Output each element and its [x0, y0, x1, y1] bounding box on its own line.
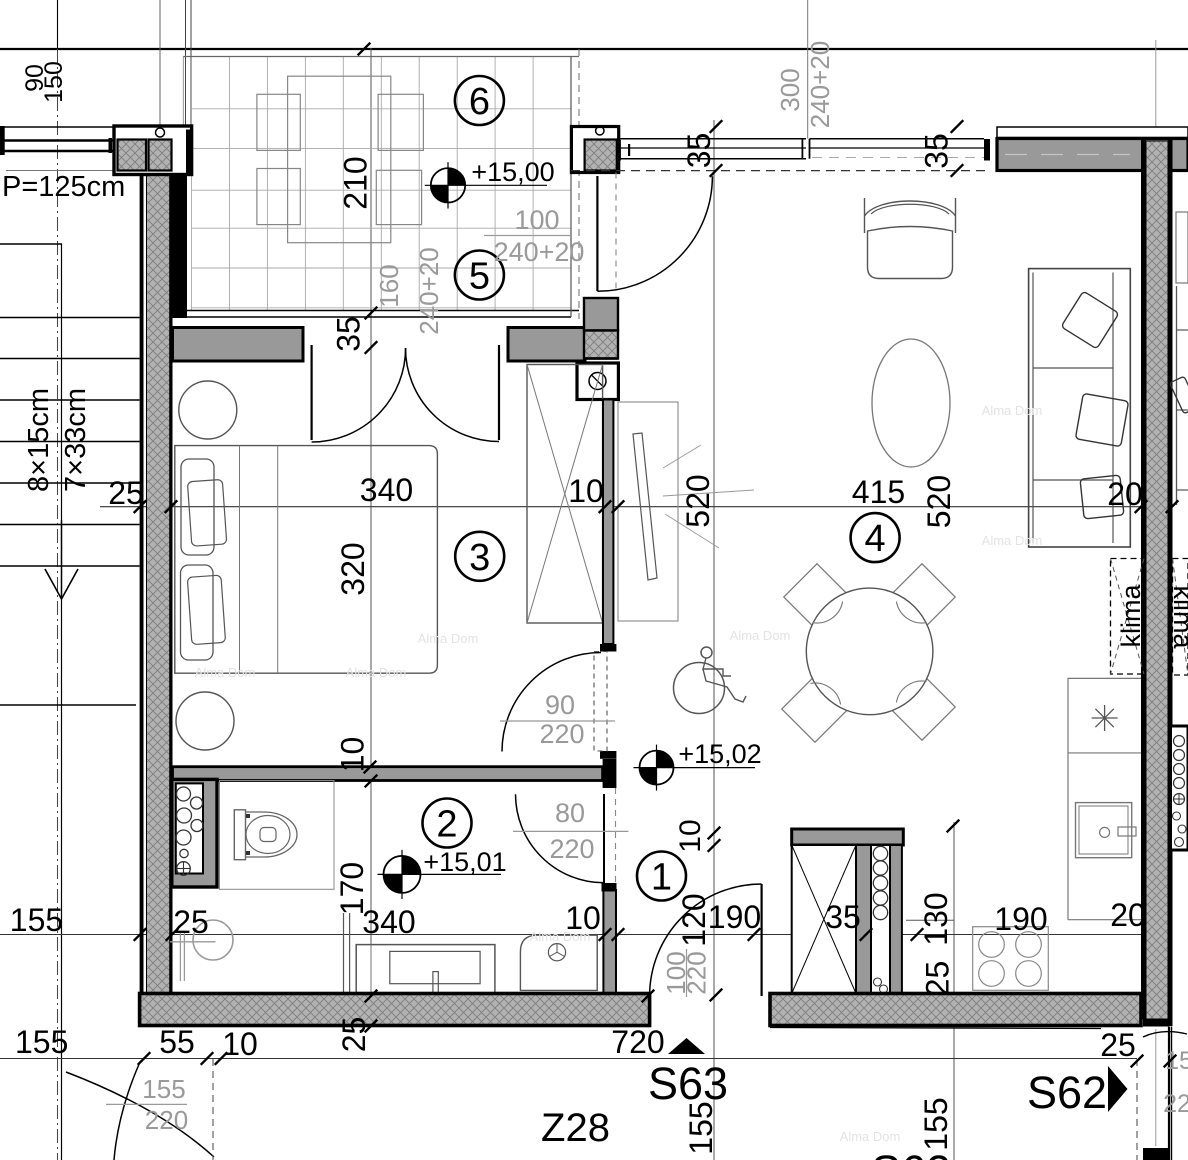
svg-text:35: 35 [681, 133, 717, 169]
svg-text:+15,00: +15,00 [471, 157, 554, 187]
svg-text:415: 415 [852, 474, 905, 510]
svg-text:100: 100 [514, 205, 559, 235]
svg-text:4: 4 [865, 518, 886, 560]
svg-text:190: 190 [708, 899, 761, 935]
svg-text:P=125cm: P=125cm [2, 171, 125, 203]
svg-text:35: 35 [825, 899, 861, 935]
svg-text:155: 155 [683, 1101, 719, 1154]
svg-text:Alma Dom: Alma Dom [982, 533, 1043, 548]
svg-text:240+20: 240+20 [494, 237, 585, 267]
svg-text:1: 1 [651, 857, 672, 899]
svg-text:220: 220 [145, 1105, 188, 1135]
svg-text:+15,02: +15,02 [678, 739, 761, 769]
svg-text:klima: klima [1116, 584, 1146, 648]
svg-text:300: 300 [775, 68, 805, 111]
svg-text:155: 155 [10, 902, 63, 938]
svg-text:Z28: Z28 [541, 1106, 610, 1150]
svg-text:10: 10 [222, 1026, 258, 1062]
svg-text:90: 90 [545, 690, 575, 720]
svg-text:Alma Dom: Alma Dom [346, 665, 407, 680]
svg-text:55: 55 [159, 1024, 195, 1060]
svg-text:320: 320 [335, 542, 371, 595]
svg-text:Alma Dom: Alma Dom [840, 1129, 901, 1144]
svg-text:10: 10 [674, 819, 707, 852]
svg-text:10: 10 [335, 737, 371, 773]
svg-text:7×33cm: 7×33cm [60, 388, 92, 492]
svg-text:S62: S62 [871, 1146, 951, 1160]
svg-text:S62: S62 [1027, 1067, 1107, 1118]
svg-text:220: 220 [1163, 1090, 1188, 1118]
svg-text:35: 35 [331, 316, 367, 352]
svg-text:155: 155 [142, 1074, 185, 1104]
svg-text:80: 80 [555, 798, 585, 828]
svg-text:220: 220 [549, 834, 594, 864]
svg-text:190: 190 [994, 901, 1047, 937]
svg-text:25: 25 [173, 904, 209, 940]
svg-text:35: 35 [919, 133, 955, 169]
svg-text:6: 6 [469, 81, 490, 123]
svg-text:25: 25 [108, 475, 144, 511]
svg-text:2: 2 [436, 804, 457, 846]
svg-text:3: 3 [469, 537, 490, 579]
svg-text:25: 25 [336, 1017, 372, 1053]
svg-text:5: 5 [469, 256, 490, 298]
svg-text:720: 720 [611, 1024, 664, 1060]
svg-text:20: 20 [1110, 897, 1146, 933]
svg-text:220: 220 [539, 719, 584, 749]
svg-text:Alma Dom: Alma Dom [530, 929, 591, 944]
svg-text:Alma Dom: Alma Dom [418, 631, 479, 646]
svg-text:Alma Dom: Alma Dom [982, 403, 1043, 418]
svg-text:10: 10 [568, 473, 604, 509]
svg-text:240+20: 240+20 [414, 247, 444, 334]
svg-text:Alma Dom: Alma Dom [730, 628, 791, 643]
svg-text:155: 155 [918, 1097, 954, 1150]
svg-text:340: 340 [362, 904, 415, 940]
svg-text:340: 340 [360, 472, 413, 508]
svg-text:25: 25 [1100, 1027, 1136, 1063]
svg-text:120: 120 [676, 893, 712, 946]
svg-text:20: 20 [1107, 476, 1143, 512]
svg-text:S63: S63 [648, 1058, 728, 1109]
svg-text:210: 210 [338, 156, 374, 209]
svg-text:170: 170 [334, 862, 370, 915]
svg-text:240+20: 240+20 [805, 41, 835, 128]
svg-text:Alma Dom: Alma Dom [195, 665, 256, 680]
svg-text:klima: klima [1168, 585, 1188, 649]
svg-text:130: 130 [918, 892, 954, 945]
svg-text:160: 160 [374, 264, 404, 307]
svg-text:25: 25 [920, 961, 956, 997]
svg-text:520: 520 [921, 475, 957, 528]
svg-text:520: 520 [680, 474, 716, 527]
svg-text:+15,01: +15,01 [423, 847, 506, 877]
svg-text:150: 150 [40, 61, 68, 103]
svg-text:220: 220 [682, 951, 712, 994]
svg-text:8×15cm: 8×15cm [23, 388, 55, 492]
svg-text:155: 155 [15, 1024, 68, 1060]
